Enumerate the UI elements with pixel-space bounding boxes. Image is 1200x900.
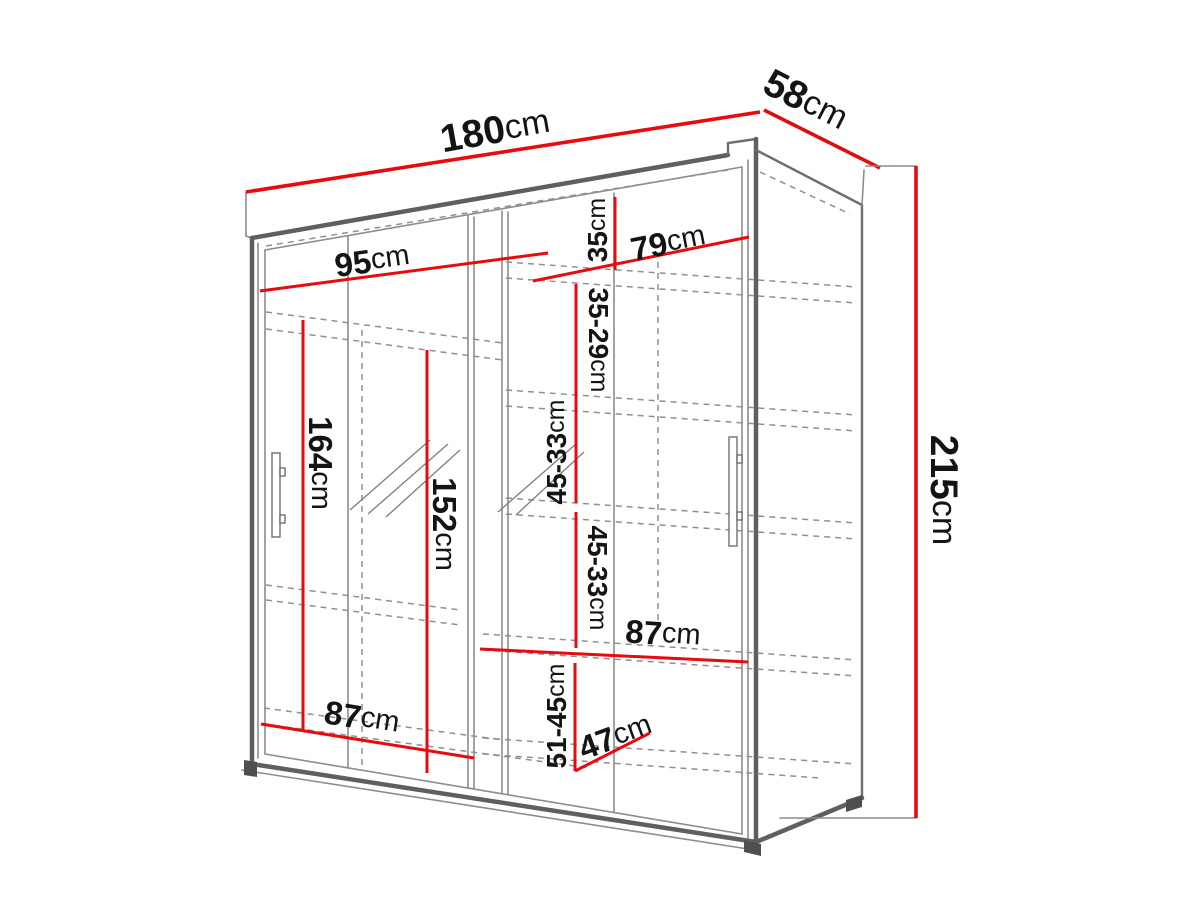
dimension-bottom-shelf-depth: 47cm [573,706,656,771]
dimension-right-gap-2: 35-29cm [576,284,615,395]
dim-value: 35-29 [584,288,615,360]
dim-unit: cm [664,219,708,258]
dimension-label: 51-45cm [541,664,572,769]
dimension-right-gap-4: 45-33cm [576,512,614,648]
shelf5-front [483,738,856,764]
dimension-label: 180cm [437,99,553,161]
dimension-label: 45-33cm [541,400,572,505]
right-door-handle [729,437,737,546]
dimension-label: 87cm [624,612,702,654]
dim-value: 164 [303,416,340,472]
dimension-label: 79cm [627,217,708,268]
right-handle-mount-bottom [737,512,742,520]
dim-value: 45-33 [541,433,572,505]
dimension-total-height: 215cm [780,166,966,818]
dim-unit: cm [429,532,461,571]
dim-unit: cm [501,102,552,147]
dim-value: 51-45 [541,697,572,769]
dimension-label: 45-33cm [583,526,614,631]
dim-unit: cm [369,239,412,276]
dimension-label: 95cm [332,236,412,283]
foot-right-back [846,795,862,812]
dimension-right-bottom-gap: 51-45cm [541,663,576,771]
dim-unit: cm [925,500,963,545]
dim-unit: cm [305,471,337,510]
shelf3-back [506,514,856,539]
dimension-right-gap-3: 45-33cm [541,395,577,504]
foot-left [244,760,257,777]
left-rod-front [266,585,460,610]
dimension-label: 215cm [923,435,966,545]
left-handle-mount-top [280,468,285,476]
door-handles [272,437,742,546]
dimension-middle-hanging-height: 152cm [427,350,464,773]
dimension-left-hanging-height: 164cm [303,320,340,730]
diagram-canvas: 180cm 58cm 215cm 95cm 79cm 35cm 35-29cm … [0,0,1200,900]
dim-unit: cm [583,198,611,231]
dim-value: 87 [624,612,663,651]
wardrobe-dimension-diagram: 180cm 58cm 215cm 95cm 79cm 35cm 35-29cm … [0,0,1200,900]
dimension-total-depth: 58cm [757,61,880,168]
right-handle-mount-top [737,455,742,463]
dim-value: 215 [923,435,966,500]
front-bottom-edge [252,764,756,842]
dimension-label: 35cm [582,198,613,262]
dimension-left-inner-width: 95cm [260,236,548,291]
dim-value: 152 [427,477,464,532]
dimension-label: 152cm [427,477,464,571]
dim-value: 45-33 [583,526,614,598]
dimension-label: 35-29cm [584,288,615,393]
plinth-line [242,770,748,849]
interior-bottom-edge [265,754,742,834]
left-handle-mount-bottom [280,515,285,523]
dim-unit: cm [661,617,702,652]
dimension-right-top-gap: 35cm [582,197,616,270]
left-door-handle [272,453,280,537]
dim-unit: cm [585,359,613,392]
shelf4-back [483,650,856,676]
top-front-step [728,139,756,155]
dim-unit: cm [542,400,570,433]
roof-right-corner [862,170,864,205]
dim-unit: cm [359,701,402,739]
left-rod-back [266,600,460,625]
dim-value: 87 [322,693,364,735]
dim-value: 35 [582,231,613,262]
dim-value: 95 [332,242,374,284]
dim-unit: cm [542,664,570,697]
dimension-label: 47cm [573,706,656,767]
shelf1-back [506,278,856,303]
dim-unit: cm [584,597,612,630]
dimension-label: 58cm [757,61,856,140]
dimension-label: 164cm [303,416,340,510]
